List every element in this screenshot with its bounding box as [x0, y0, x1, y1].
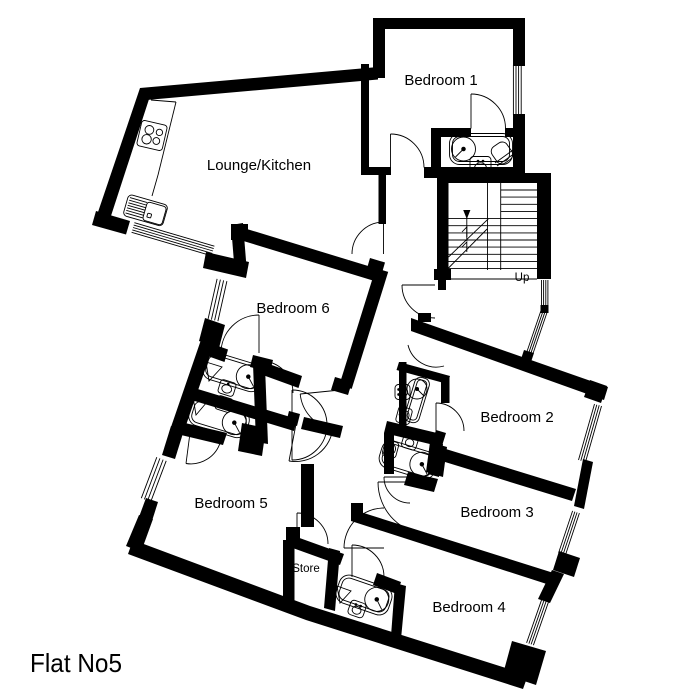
- svg-text:Bedroom 2: Bedroom 2: [480, 409, 553, 426]
- svg-text:Bedroom 1: Bedroom 1: [404, 72, 477, 89]
- svg-text:Bedroom 5: Bedroom 5: [194, 495, 267, 512]
- svg-text:Lounge/Kitchen: Lounge/Kitchen: [207, 157, 311, 174]
- svg-text:Bedroom 4: Bedroom 4: [432, 599, 505, 616]
- svg-text:Flat No5: Flat No5: [30, 648, 122, 678]
- svg-text:Up: Up: [515, 272, 530, 284]
- svg-text:Bedroom 3: Bedroom 3: [460, 504, 533, 521]
- svg-text:Bedroom 6: Bedroom 6: [256, 300, 329, 317]
- svg-text:Store: Store: [292, 563, 320, 575]
